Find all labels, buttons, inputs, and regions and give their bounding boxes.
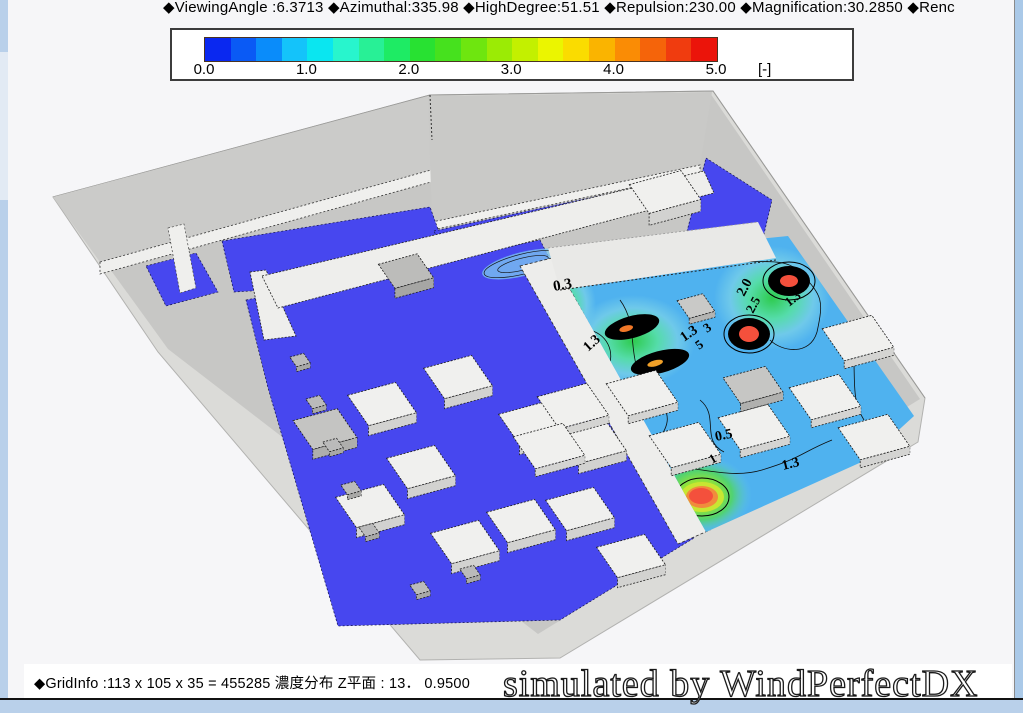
color-scale-bar [204, 37, 718, 62]
color-scale-unit: [-] [758, 61, 771, 78]
color-scale-legend: 0.01.02.03.04.05.0 [-] [170, 28, 854, 81]
color-scale-tick: 3.0 [489, 61, 533, 78]
color-scale-tick: 2.0 [387, 61, 431, 78]
contour-label: 0.3 [552, 276, 573, 295]
color-scale-tick: 5.0 [694, 61, 738, 78]
windperfect-viewer-window: ◆ViewingAngle :6.3713 ◆Azimuthal:335.98 … [0, 0, 1023, 713]
grid-info-readout: ◆GridInfo :113 x 105 x 35 = 455285 濃度分布 … [34, 672, 470, 693]
color-scale-tick: 1.0 [284, 61, 328, 78]
watermark-text: simulated by WindPerfectDX [503, 662, 978, 706]
3d-concentration-viewport[interactable]: 0.31.31.3532.02.51.30.511.3 [0, 0, 1023, 713]
color-scale-tick: 4.0 [592, 61, 636, 78]
color-scale-tick: 0.0 [182, 61, 226, 78]
